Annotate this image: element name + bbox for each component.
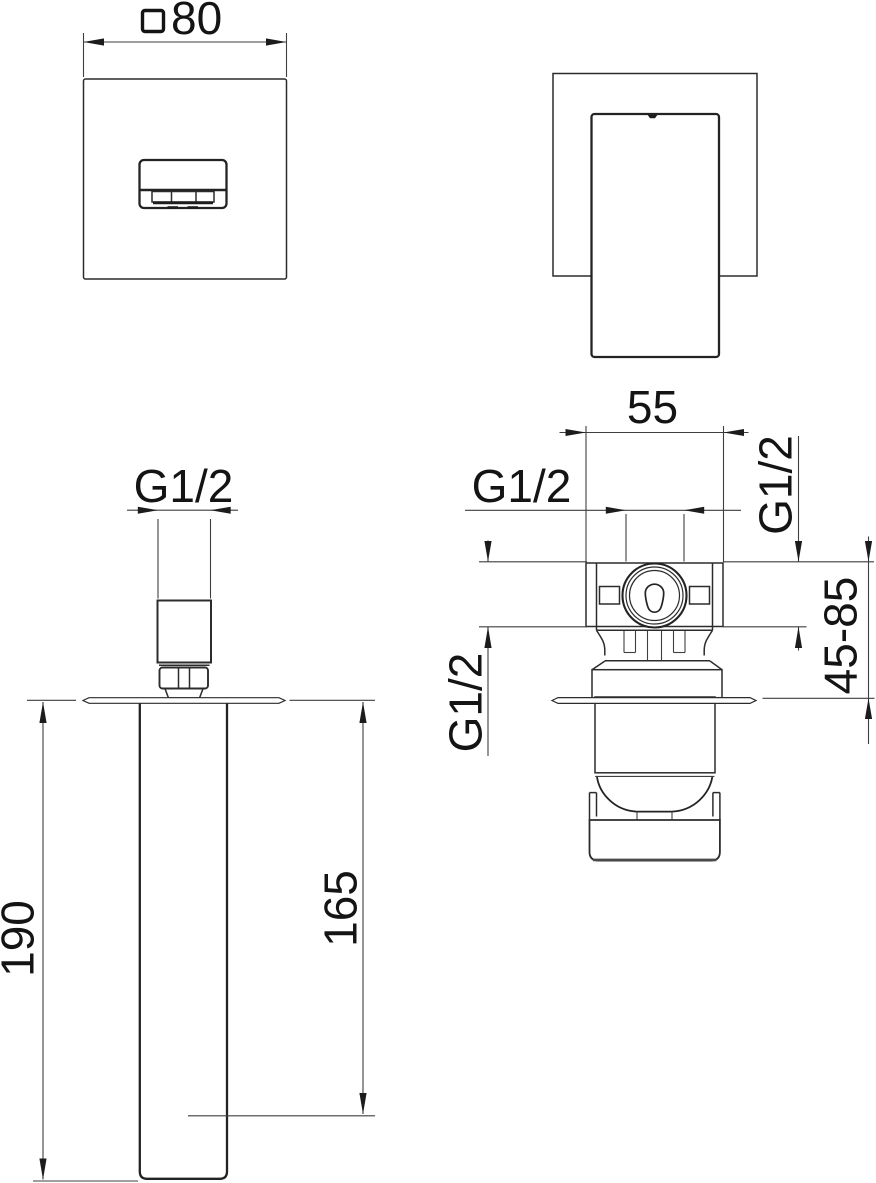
arrowhead-down	[39, 1159, 46, 1180]
outlet-bowl	[597, 777, 712, 812]
arrowhead-up	[865, 698, 872, 719]
left-thread-label: G1/2	[440, 653, 492, 753]
valve-neck	[592, 630, 722, 669]
top-side-view	[553, 74, 757, 358]
valve-width-label: 55	[627, 381, 678, 433]
arrowhead-up	[795, 627, 802, 648]
dim-overall-length: 190	[0, 700, 138, 1181]
square-dimension-symbol	[143, 11, 164, 32]
arrowhead-down	[865, 541, 872, 562]
inlet-thread-label: G1/2	[134, 460, 234, 512]
overall-length-label: 190	[0, 900, 44, 977]
dim-top-thread: G1/2	[465, 460, 741, 562]
dim-valve-width: 55	[560, 381, 749, 562]
spout-body-front	[592, 114, 720, 357]
ceiling-plate	[83, 698, 285, 704]
valve-body	[552, 563, 756, 861]
arrowhead-left	[84, 38, 105, 45]
depth-range-label: 45-85	[815, 577, 867, 695]
dim-inlet-thread: G1/2	[127, 460, 238, 599]
spout-tube	[140, 704, 227, 1179]
hex-nut	[160, 668, 209, 689]
right-thread-label: G1/2	[750, 435, 802, 535]
arrowhead-up	[484, 627, 491, 648]
dim-right-thread: G1/2	[750, 435, 803, 650]
wall-plate-front-outline	[84, 79, 287, 279]
spout-side-view: G1/2 190 165	[0, 460, 375, 1181]
outlet-distance-label: 165	[315, 870, 367, 947]
inlet-thread-fitting	[158, 601, 212, 663]
arrowhead-up	[359, 702, 366, 723]
arrowhead-right	[724, 429, 745, 436]
technical-drawing-page: 80 G1/2	[0, 0, 876, 1183]
valve-collar	[592, 670, 722, 698]
valve-lower-block	[595, 697, 715, 773]
arrowhead-down	[484, 541, 491, 562]
arrowhead-left	[606, 507, 626, 514]
top-thread-label: G1/2	[472, 460, 572, 512]
spout-mouth	[590, 776, 720, 860]
arrowhead-right	[266, 38, 287, 45]
mouth-cap	[590, 820, 720, 861]
arrowhead-left	[566, 429, 587, 436]
arrowhead-down	[795, 541, 802, 562]
wall-plate-edge	[552, 698, 756, 704]
front-view: 80	[84, 0, 287, 279]
arrowhead-right	[684, 507, 704, 514]
arrowhead-up	[39, 702, 46, 723]
valve-side-view: 55 G1/2 G1/2	[440, 381, 875, 861]
dim-depth-range: 45-85	[815, 537, 873, 745]
dim-plate-size: 80	[84, 0, 287, 77]
dim-left-thread: G1/2	[440, 541, 492, 757]
technical-drawing-canvas: 80 G1/2	[0, 0, 876, 1183]
valve-stem	[645, 584, 663, 612]
plate-size-label: 80	[171, 0, 222, 44]
arrowhead-down	[359, 1093, 366, 1114]
nut-collar	[165, 689, 203, 698]
